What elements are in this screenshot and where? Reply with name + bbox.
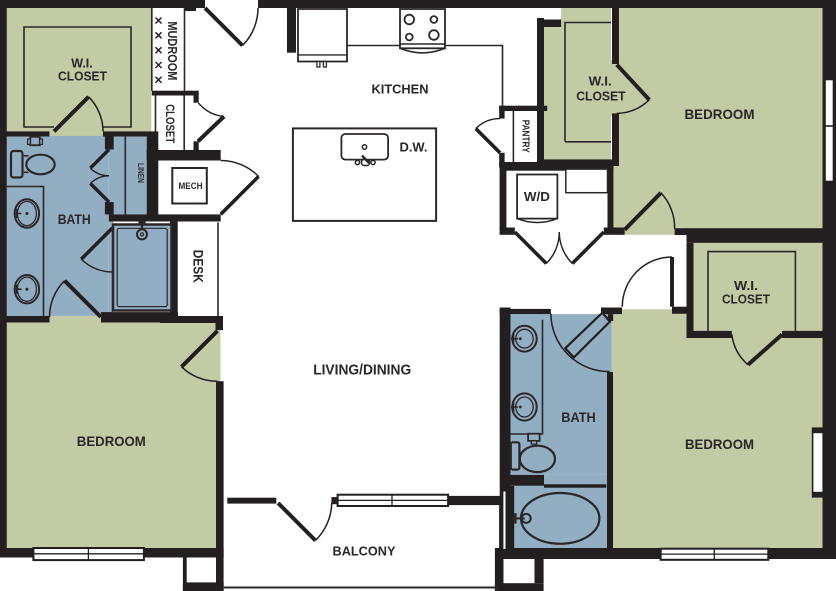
svg-text:MUDROOM: MUDROOM [165,21,180,80]
svg-text:W.I.: W.I. [589,73,612,88]
svg-text:LIVING/DINING: LIVING/DINING [313,362,411,379]
svg-text:DESK: DESK [190,250,206,283]
svg-text:CLOSET: CLOSET [576,88,625,103]
svg-text:CLOSET: CLOSET [722,292,770,306]
svg-text:BALCONY: BALCONY [333,544,396,559]
svg-text:BEDROOM: BEDROOM [685,106,755,122]
svg-text:D.W.: D.W. [400,141,428,155]
svg-text:BATH: BATH [561,410,596,425]
svg-text:W.I.: W.I. [734,279,758,293]
svg-text:PANTRY: PANTRY [520,120,532,153]
svg-text:W/D: W/D [524,190,550,204]
svg-text:MECH: MECH [179,181,203,191]
svg-text:CLOSET: CLOSET [58,69,107,84]
svg-text:BEDROOM: BEDROOM [685,436,754,452]
svg-text:KITCHEN: KITCHEN [372,81,429,96]
svg-text:BEDROOM: BEDROOM [77,433,146,449]
svg-text:LINEN: LINEN [136,163,146,183]
svg-text:CLOSET: CLOSET [163,104,175,143]
svg-text:BATH: BATH [58,212,91,227]
